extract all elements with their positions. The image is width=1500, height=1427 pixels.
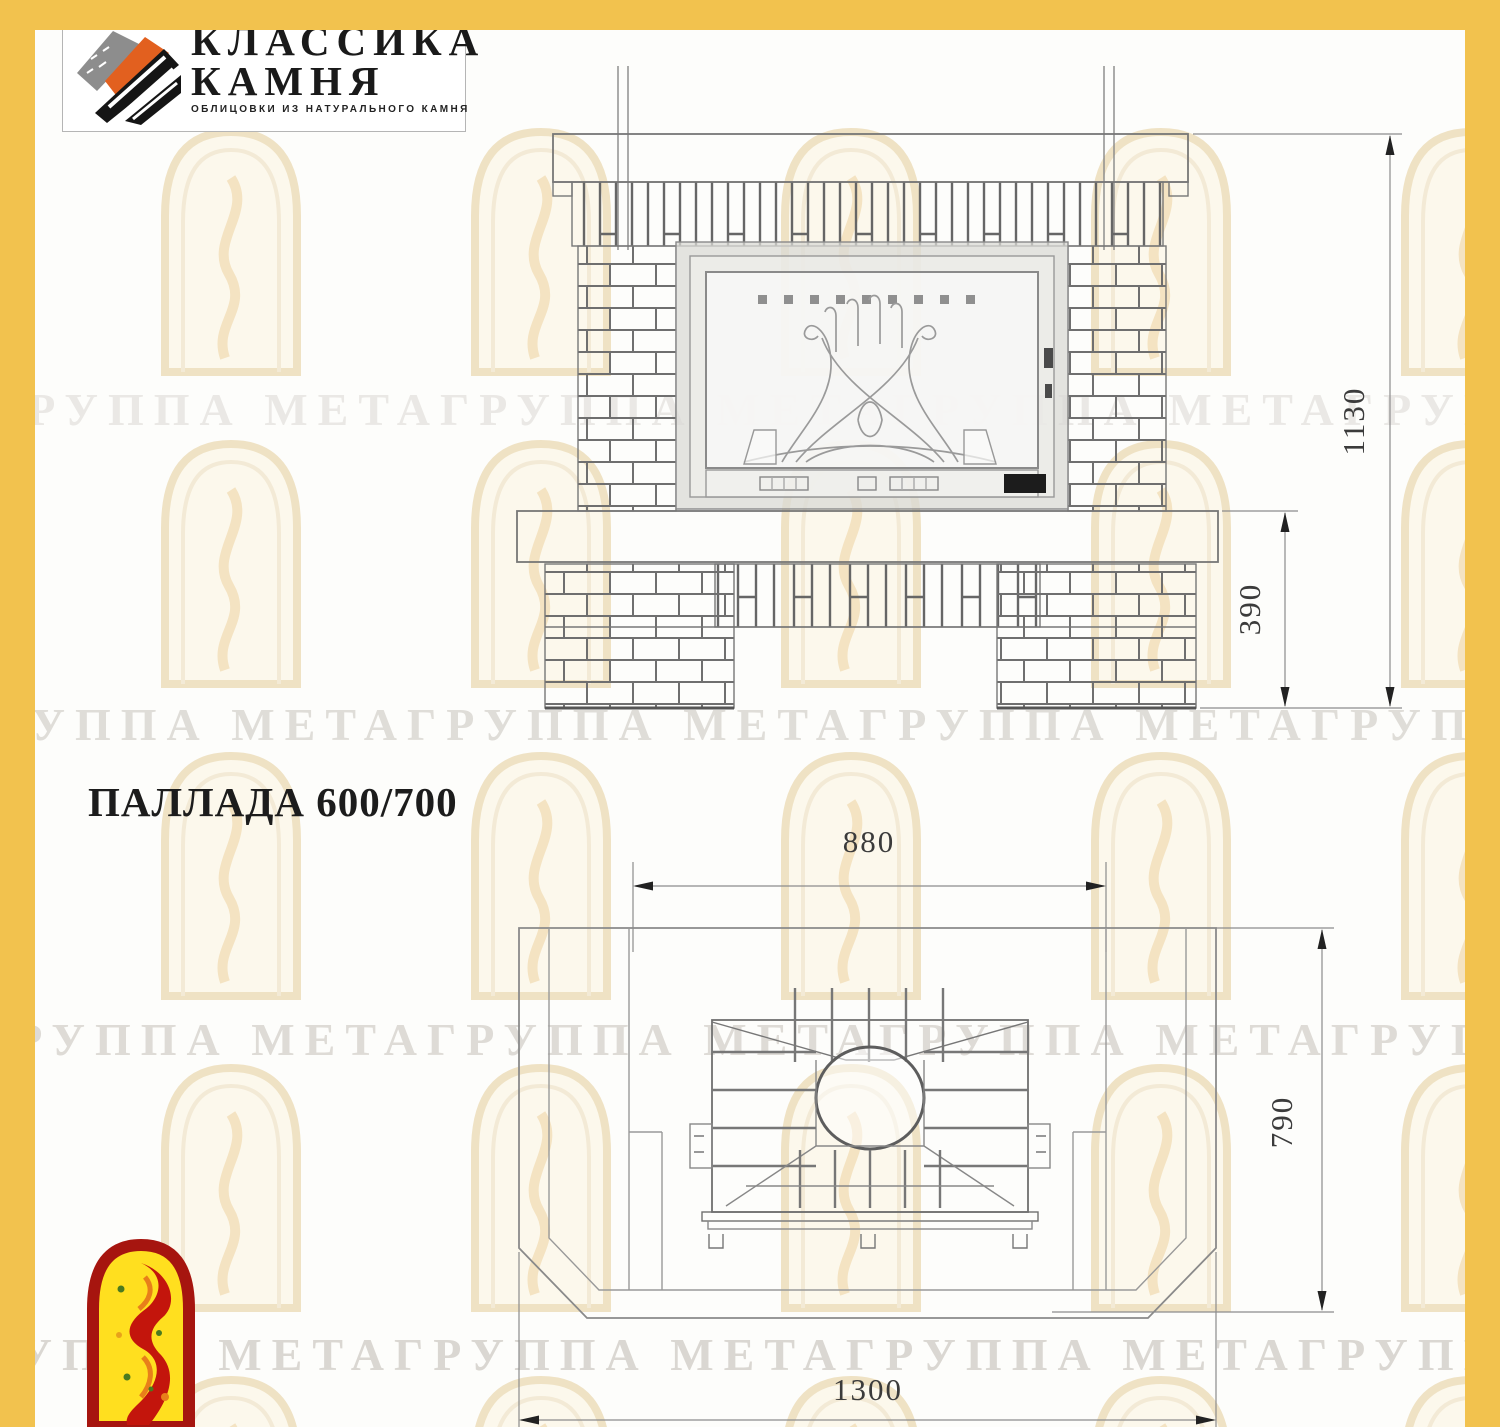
fireplace-technical-drawing: 1130 390 880 <box>0 0 1500 1427</box>
left-leg <box>545 564 734 708</box>
page-border-top <box>0 0 1500 30</box>
dim-label-depth: 790 <box>1264 1096 1299 1149</box>
right-leg <box>997 564 1196 708</box>
firebox-insert <box>676 242 1068 509</box>
dim-label-opening-width: 880 <box>843 824 896 859</box>
hearth-shelf <box>517 511 1218 562</box>
right-column <box>1068 246 1166 511</box>
spec-sheet-page: ГРУППА МЕТАГРУППА МЕТАГРУППА МЕТАГРУППА … <box>0 0 1500 1427</box>
page-border-right <box>1465 0 1500 1427</box>
front-elevation-view: 1130 390 <box>517 66 1402 708</box>
ash-drawer <box>1004 474 1046 493</box>
lower-frieze <box>715 564 1040 627</box>
dimension-opening-width <box>633 862 1106 952</box>
upper-frieze <box>572 182 1163 246</box>
flue-outlet <box>816 1047 924 1149</box>
meta-flame-arch-logo <box>85 1237 197 1427</box>
stone-logo-icon <box>69 21 187 129</box>
page-border-left <box>0 0 35 1427</box>
dim-label-total-height: 1130 <box>1336 387 1371 456</box>
left-column <box>578 246 676 511</box>
logo-tagline: ОБЛИЦОВКИ ИЗ НАТУРАЛЬНОГО КАМНЯ <box>191 104 485 115</box>
dim-label-total-width: 1300 <box>833 1372 903 1407</box>
mantel-shelf <box>553 134 1188 182</box>
logo-name-line2: КАМНЯ <box>191 61 485 101</box>
door-handle <box>1044 348 1053 368</box>
plan-view: 880 <box>519 824 1334 1427</box>
model-title: ПАЛЛАДА 600/700 <box>88 778 458 826</box>
dim-label-hearth-height: 390 <box>1232 583 1267 636</box>
company-logo: КЛАССИКА КАМНЯ ОБЛИЦОВКИ ИЗ НАТУРАЛЬНОГО… <box>62 16 466 132</box>
firebox-plan <box>690 988 1050 1248</box>
